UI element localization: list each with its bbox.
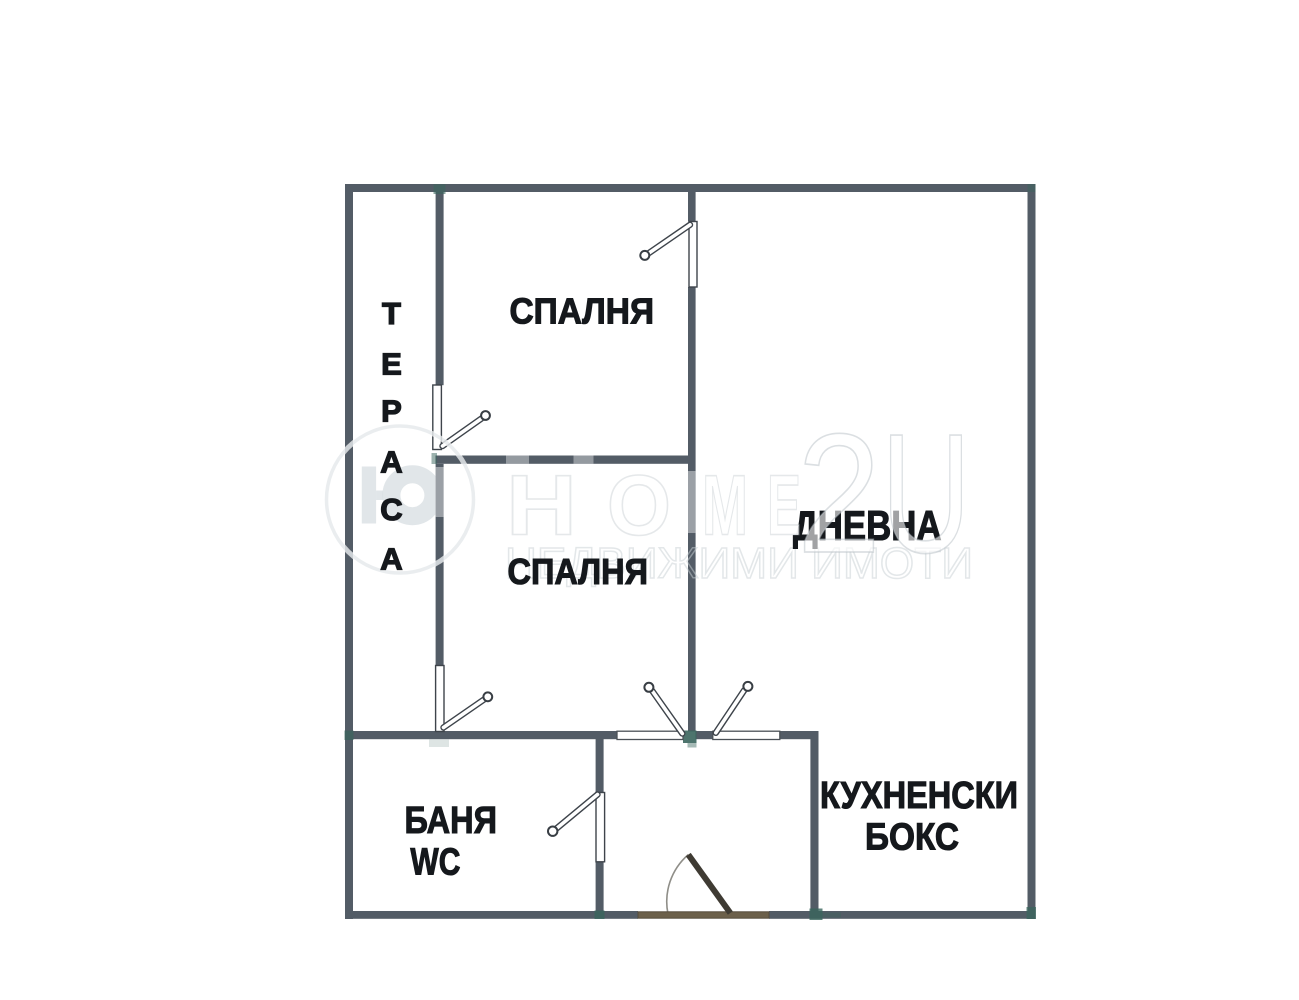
- svg-text:СПАЛНЯ: СПАЛНЯ: [508, 551, 649, 592]
- svg-text:Т: Т: [382, 296, 401, 331]
- svg-text:М: М: [702, 459, 748, 554]
- svg-text:Н: Н: [506, 459, 577, 554]
- svg-text:Р: Р: [381, 394, 402, 429]
- svg-text:С: С: [380, 492, 402, 527]
- svg-text:КУХНЕНСКИ: КУХНЕНСКИ: [820, 775, 1018, 817]
- svg-text:БАНЯ: БАНЯ: [405, 800, 498, 842]
- svg-text:А: А: [380, 542, 402, 577]
- svg-text:БОКС: БОКС: [865, 817, 959, 859]
- svg-text:U: U: [881, 399, 971, 589]
- svg-text:Е: Е: [381, 347, 402, 382]
- svg-text:СПАЛНЯ: СПАЛНЯ: [510, 290, 655, 331]
- svg-text:О: О: [607, 459, 671, 554]
- svg-text:Е: Е: [767, 459, 801, 554]
- svg-text:А: А: [380, 445, 402, 480]
- svg-text:2: 2: [797, 399, 881, 589]
- svg-text:WC: WC: [410, 842, 460, 884]
